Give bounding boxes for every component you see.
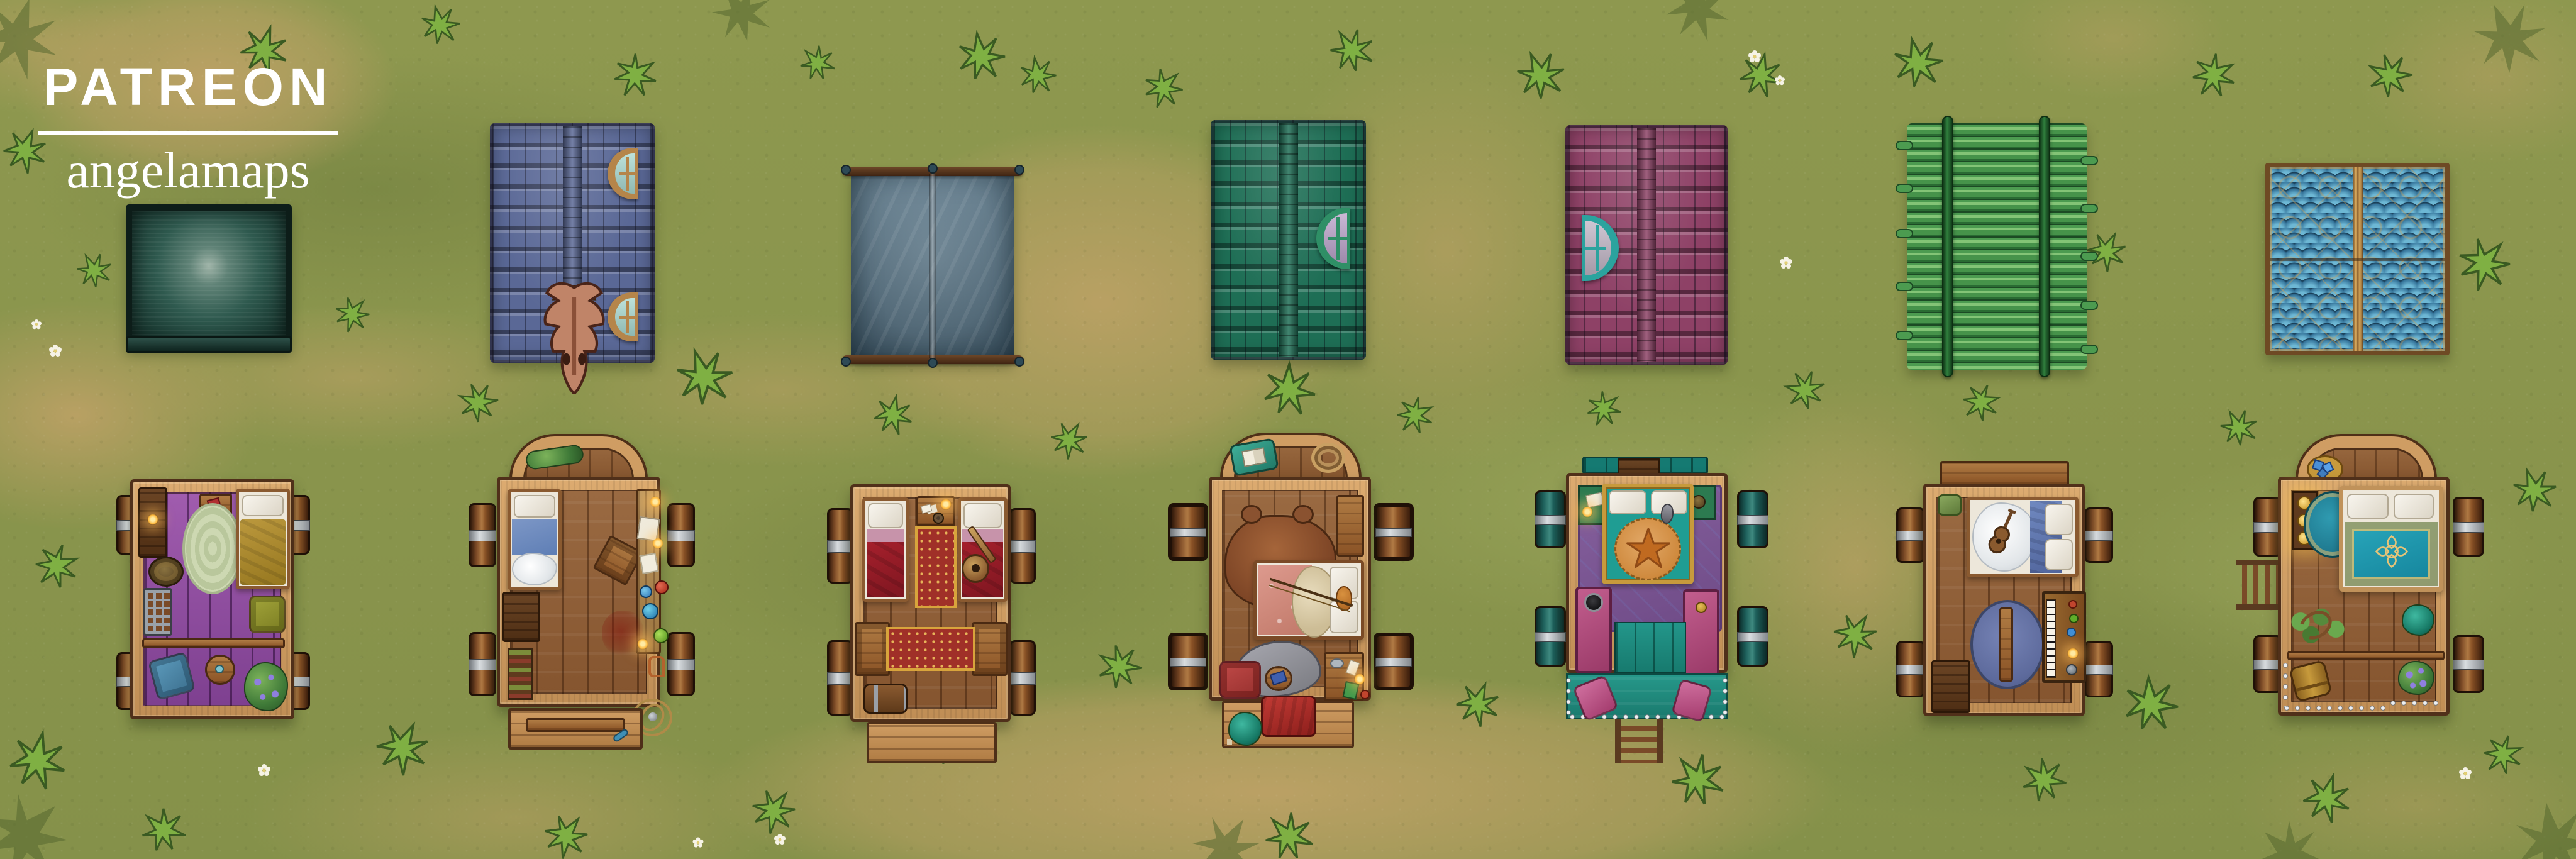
wagon-wheel — [1009, 640, 1036, 716]
bamboo-binding-rail — [1942, 116, 1953, 377]
wagon-wheel — [827, 508, 853, 584]
battle-map: PATREON angelamaps — [0, 0, 2576, 859]
wagon-wheel — [1374, 503, 1414, 561]
tent-ridge — [929, 174, 936, 358]
wagon-body — [1209, 477, 1371, 701]
cup — [215, 665, 224, 673]
wagon-arch-front — [509, 434, 648, 479]
tailgate-step — [508, 708, 643, 750]
riveted-edge — [2282, 662, 2289, 707]
wagon-purple — [116, 479, 311, 724]
tent-canvas — [851, 170, 1014, 362]
braided-rug — [182, 503, 243, 594]
wagon-wheel — [1896, 507, 1925, 563]
copper-apparatus — [648, 656, 665, 677]
brand-watermark: PATREON angelamaps — [38, 60, 338, 197]
wagon-wheel — [1737, 606, 1768, 667]
candle-icon — [652, 538, 663, 549]
red-armchair — [1219, 661, 1261, 699]
wagon-treasure — [2236, 434, 2487, 780]
wagon-body — [850, 484, 1011, 722]
gold-framed-bed — [1602, 484, 1694, 584]
candle-icon — [940, 499, 952, 510]
runner-rug — [915, 526, 957, 608]
wagon-hunter — [1167, 433, 1415, 769]
potted-purple-flowers — [244, 662, 288, 711]
bottle-rack — [508, 648, 533, 700]
bed — [1967, 497, 2079, 577]
blue-trinket — [2067, 628, 2076, 637]
wagon-wheel — [1374, 633, 1414, 690]
bowl — [1330, 658, 1344, 668]
wagon-twin-beds — [827, 484, 1036, 766]
iron-stove — [143, 588, 172, 636]
riveted-edge — [2284, 705, 2386, 711]
rear-step — [867, 722, 997, 763]
gold-flask — [1696, 602, 1707, 613]
blue-blanket — [512, 519, 557, 555]
dragon-skull-icon — [535, 277, 614, 394]
wagon-body — [1923, 484, 2085, 716]
upright-piano — [2042, 591, 2086, 683]
wagon-roof-green-shingles — [1211, 120, 1366, 360]
olive-armchair — [249, 596, 286, 633]
wagon-wheel — [1737, 490, 1768, 548]
candle-icon — [2067, 648, 2079, 659]
side-ladder — [2236, 560, 2280, 610]
wall-bench — [1336, 495, 1364, 557]
wagon-wheel — [667, 503, 695, 567]
candle-icon — [650, 496, 661, 507]
green-backpack — [1938, 494, 1962, 516]
candle-icon — [637, 638, 648, 650]
bench — [1999, 607, 2013, 682]
wagon-roof-canvas — [126, 204, 292, 349]
potion-green — [653, 628, 669, 643]
wagon-wheel — [2453, 497, 2484, 557]
rope-coil — [1311, 443, 1345, 473]
rear-step — [1222, 701, 1354, 748]
wagon-wheel — [2453, 635, 2484, 693]
brand-rule — [38, 131, 338, 135]
candle-icon — [1354, 673, 1365, 685]
wagon-arch-front — [1220, 433, 1362, 478]
driver-platform — [1940, 461, 2069, 486]
dormer-window — [1316, 208, 1350, 269]
ladder — [1615, 719, 1663, 763]
red-cushion — [1261, 696, 1316, 737]
wagon-roof-bamboo — [1907, 123, 2087, 370]
dark-crate — [1931, 660, 1970, 713]
red-blanket — [867, 542, 904, 597]
emblem-icon — [2370, 529, 2414, 574]
wagon-wheel — [1896, 641, 1925, 697]
wagon-wheel — [667, 632, 695, 696]
olive-blanket — [240, 519, 286, 585]
potion-blue-large — [642, 603, 658, 619]
wagon-body — [2278, 477, 2450, 716]
wagon-wheel — [2084, 641, 2113, 697]
bearskin-ear — [1292, 505, 1314, 524]
roof-ridge — [1279, 123, 1298, 357]
roof-seam — [2270, 258, 2445, 261]
wagon-wheel — [2084, 507, 2113, 563]
teal-plant — [2402, 604, 2434, 636]
piano-keys — [2046, 599, 2056, 678]
fox-kit — [1336, 586, 1352, 611]
potion-blue — [640, 585, 652, 598]
brand-subtitle: angelamaps — [38, 143, 338, 197]
teal-plank-floor — [1614, 622, 1686, 673]
wagon-wheel — [1535, 606, 1566, 667]
wagon-roof-blue-scales — [2265, 163, 2450, 355]
dark-crate — [502, 592, 540, 642]
bed — [1253, 560, 1364, 640]
starfish-icon — [1624, 525, 1672, 573]
bench-right — [972, 622, 1008, 676]
green-trinket — [2069, 614, 2079, 623]
bronze-disc — [1692, 495, 1706, 509]
divider-rail — [2287, 651, 2445, 660]
bamboo-binding-rail — [2039, 116, 2050, 377]
dormer-window — [608, 148, 638, 199]
wagon-fancy — [1535, 455, 1768, 765]
divider-rail — [142, 638, 285, 648]
grey-trinket — [2066, 664, 2077, 675]
wagon-roof-plum-shingles — [1565, 125, 1728, 365]
teal-potted-plant — [1228, 712, 1262, 746]
floor-rug — [886, 627, 975, 671]
paper-sheet — [640, 553, 659, 574]
candle-icon — [1582, 506, 1593, 518]
bed — [508, 489, 562, 590]
bed — [236, 489, 290, 589]
wagon-body — [497, 477, 660, 707]
bed-left — [862, 497, 909, 602]
wagon-musician — [1896, 461, 2113, 725]
wagon-body — [1566, 473, 1728, 673]
wagon-wheel — [1535, 490, 1566, 548]
barrel-chest — [863, 684, 908, 714]
wagon-arch-front — [2296, 434, 2437, 479]
bronze-gong — [148, 557, 184, 587]
mortar — [1584, 593, 1603, 612]
candle-icon — [147, 514, 158, 525]
wagon-wheel — [469, 632, 496, 696]
bearskin-ear — [1241, 505, 1262, 524]
pan — [933, 513, 944, 524]
roof-ridge — [1637, 128, 1656, 362]
teal-porch — [1566, 673, 1728, 719]
purple-flower-pot — [2398, 661, 2434, 695]
wagon-wheel — [827, 640, 853, 716]
wagon-body — [130, 479, 294, 719]
potion-red — [655, 580, 669, 594]
red-pouch — [1360, 690, 1370, 699]
emblem-bed — [2339, 486, 2443, 592]
wagon-alchemist — [469, 434, 695, 753]
riveted-edge — [2390, 700, 2444, 706]
canvas-roof-rolled-edge — [126, 336, 292, 353]
wagon-wheel — [1168, 503, 1208, 561]
red-trinket — [2068, 600, 2077, 609]
wagon-wheel — [1168, 633, 1208, 690]
dormer-window — [1582, 215, 1619, 281]
wagon-wheel — [1009, 508, 1036, 584]
brand-title: PATREON — [38, 60, 338, 113]
wagon-wheel — [469, 503, 496, 567]
fur-throw — [512, 553, 557, 585]
wagon-roof-blue-shingles — [490, 123, 655, 363]
bench-left — [855, 622, 890, 676]
